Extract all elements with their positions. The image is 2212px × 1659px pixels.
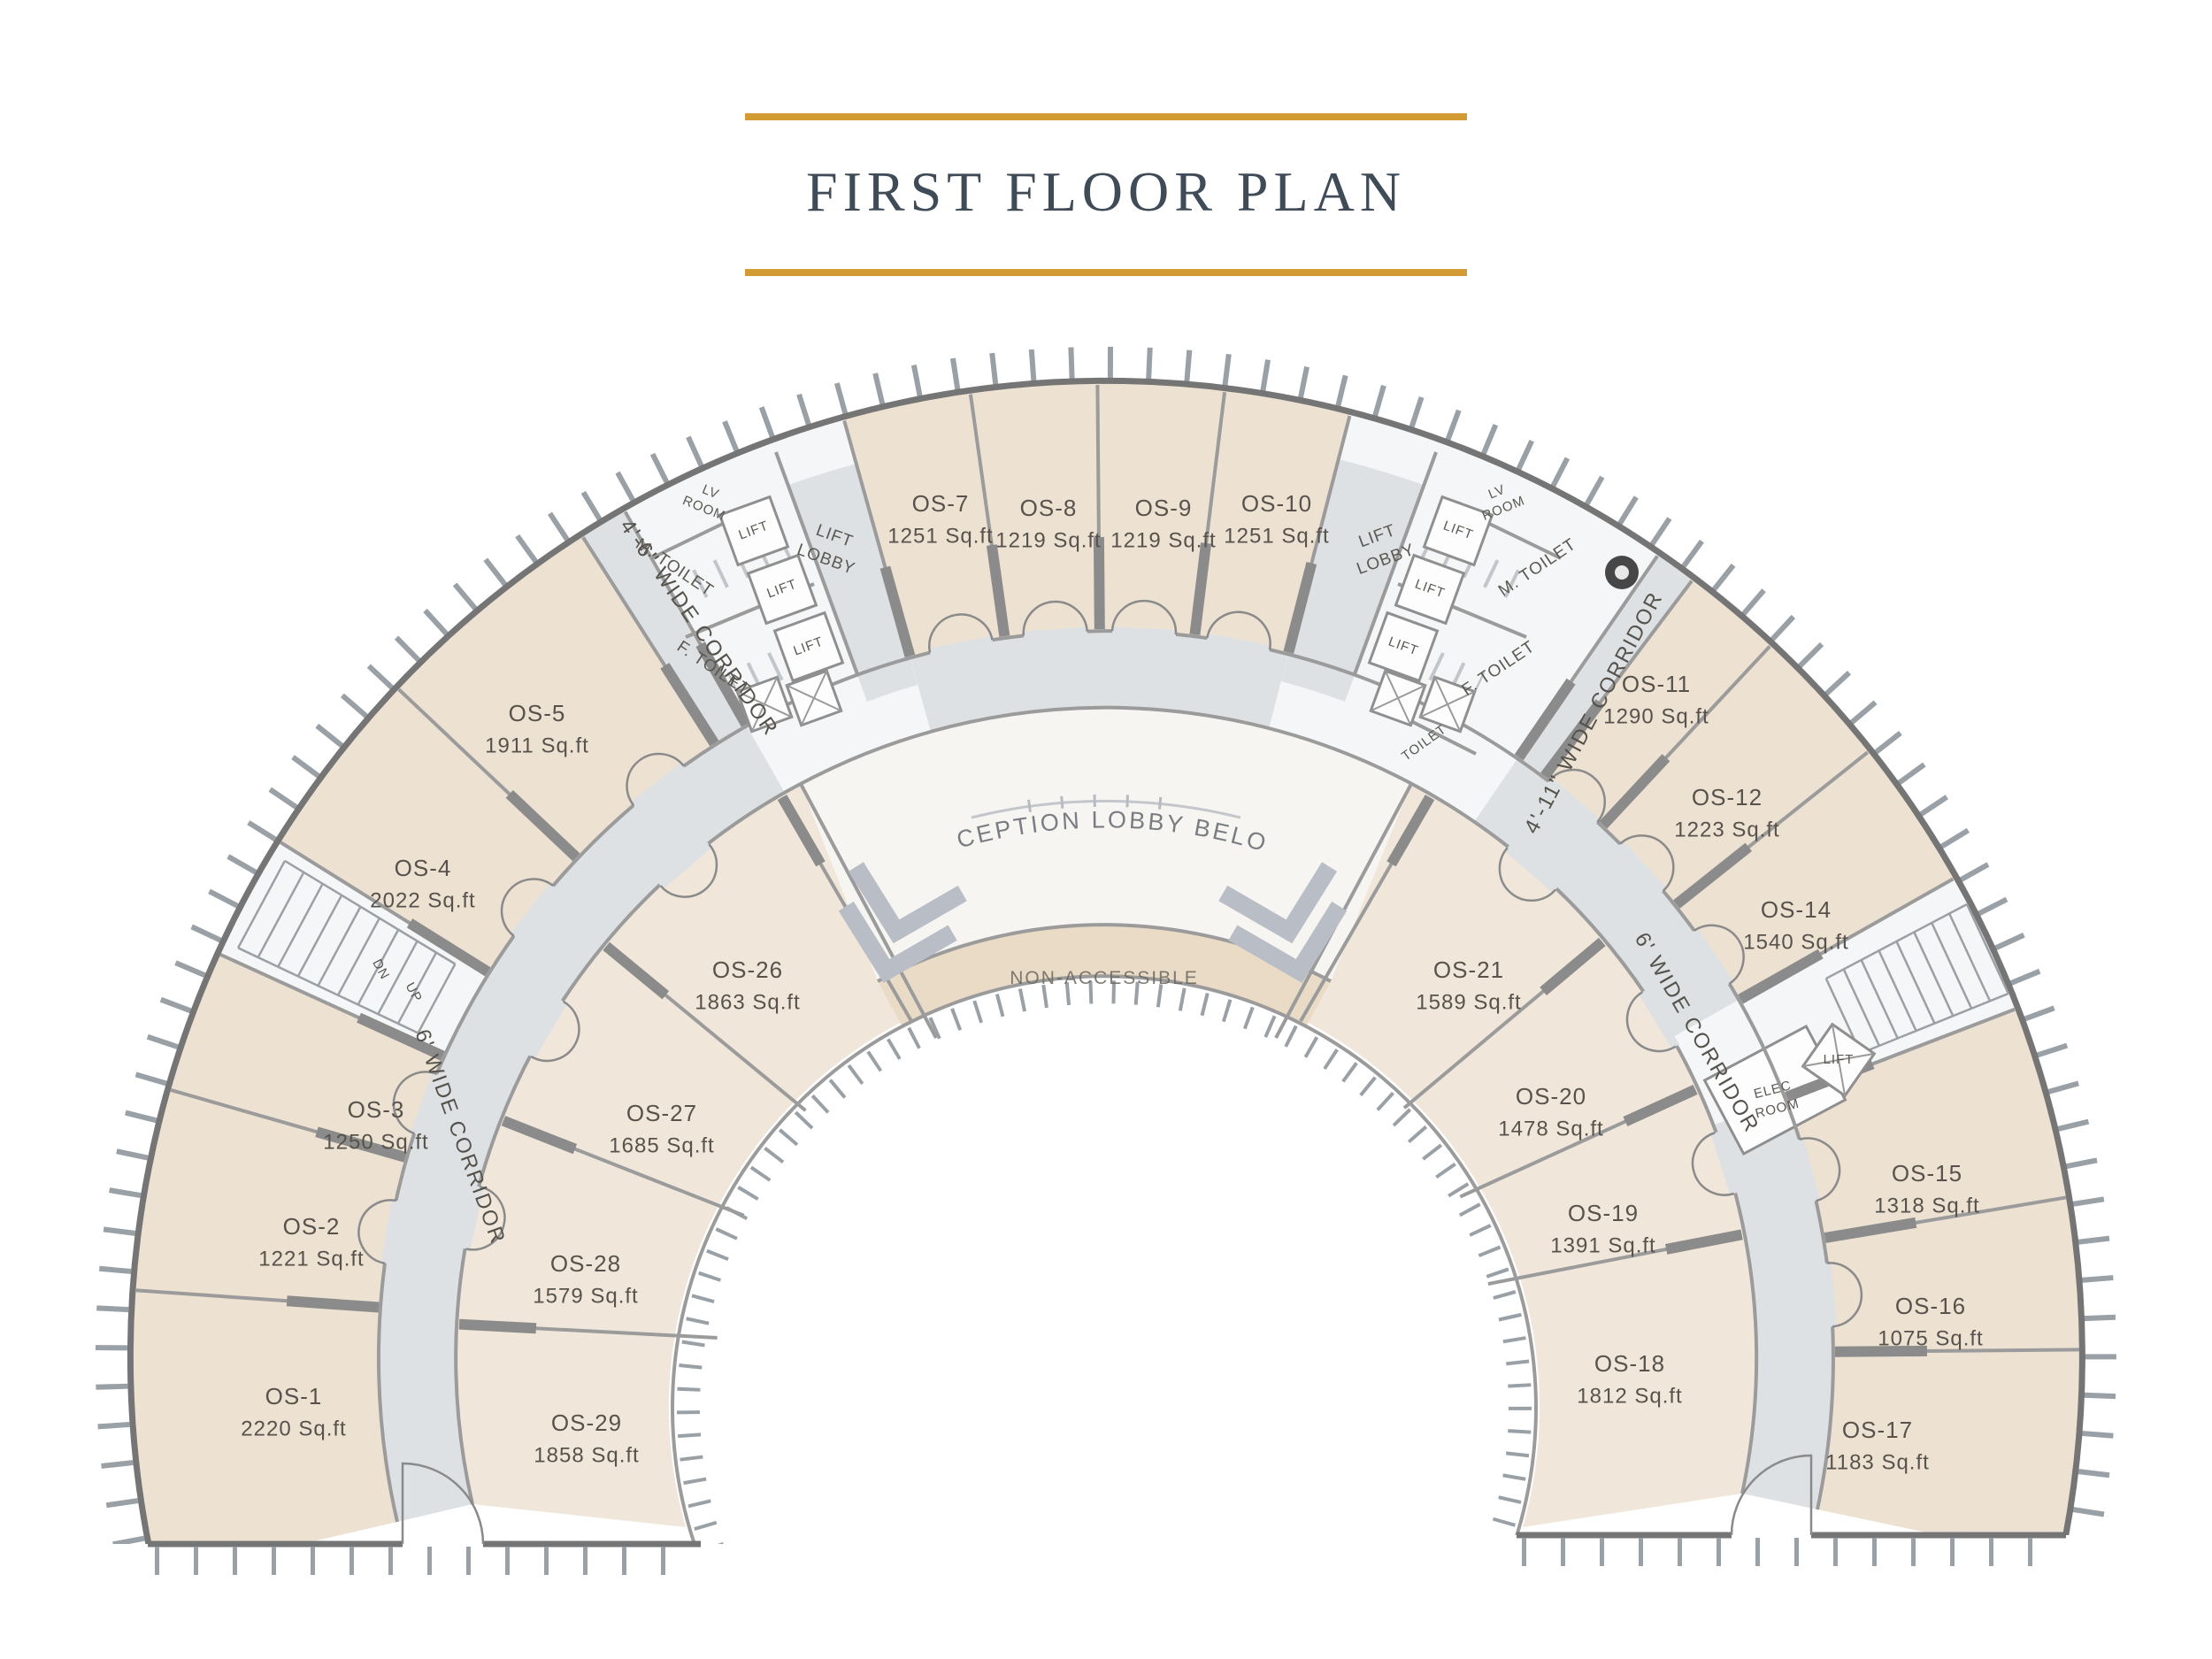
unit-area-OS-29: 1858 Sq.ft — [534, 1443, 639, 1467]
bottom-trim-left — [0, 1544, 796, 1659]
non-accessible-label: NON-ACCESSIBLE — [1010, 968, 1199, 988]
unit-area-OS-4: 2022 Sq.ft — [370, 888, 475, 912]
unit-id-OS-27: OS-27 — [626, 1100, 697, 1126]
divider-wall-jamb — [287, 1301, 379, 1307]
unit-id-OS-29: OS-29 — [551, 1409, 622, 1436]
bottom-trim-right — [1425, 1535, 2212, 1659]
unit-area-OS-12: 1223 Sq.ft — [1674, 818, 1779, 841]
unit-area-OS-10: 1251 Sq.ft — [1224, 524, 1329, 548]
stair-lift-label: LIFT — [1824, 1052, 1855, 1067]
floor-plan-canvas: FIRST FLOOR PLAN — [0, 0, 2212, 1659]
unit-id-OS-1: OS-1 — [265, 1383, 323, 1409]
unit-area-OS-28: 1579 Sq.ft — [533, 1284, 638, 1308]
unit-id-OS-2: OS-2 — [283, 1213, 341, 1240]
unit-area-OS-8: 1219 Sq.ft — [995, 528, 1101, 552]
unit-area-OS-18: 1812 Sq.ft — [1577, 1384, 1682, 1408]
unit-area-OS-9: 1219 Sq.ft — [1110, 528, 1216, 552]
unit-area-OS-27: 1685 Sq.ft — [609, 1133, 714, 1157]
unit-area-OS-19: 1391 Sq.ft — [1550, 1233, 1655, 1257]
unit-id-OS-28: OS-28 — [550, 1250, 621, 1277]
column-icon-center — [1615, 565, 1629, 580]
unit-id-OS-15: OS-15 — [1892, 1160, 1962, 1187]
unit-id-OS-10: OS-10 — [1241, 490, 1312, 517]
unit-id-OS-8: OS-8 — [1020, 495, 1078, 521]
unit-id-OS-11: OS-11 — [1622, 671, 1691, 697]
divider-wall-jamb — [1835, 1351, 1927, 1352]
unit-area-OS-1: 2220 Sq.ft — [241, 1417, 346, 1440]
unit-id-OS-7: OS-7 — [912, 490, 970, 517]
unit-area-OS-3: 1250 Sq.ft — [323, 1130, 428, 1154]
unit-id-OS-20: OS-20 — [1516, 1083, 1586, 1110]
unit-id-OS-18: OS-18 — [1594, 1350, 1665, 1377]
unit-area-OS-21: 1589 Sq.ft — [1416, 990, 1521, 1014]
unit-id-OS-5: OS-5 — [509, 700, 566, 726]
unit-id-OS-3: OS-3 — [348, 1096, 405, 1123]
unit-id-OS-19: OS-19 — [1568, 1200, 1639, 1226]
unit-area-OS-14: 1540 Sq.ft — [1743, 930, 1848, 954]
unit-area-OS-15: 1318 Sq.ft — [1874, 1194, 1979, 1217]
unit-id-OS-12: OS-12 — [1692, 784, 1763, 810]
divider-wall-jamb — [459, 1325, 536, 1329]
unit-area-OS-2: 1221 Sq.ft — [258, 1247, 364, 1271]
unit-id-OS-14: OS-14 — [1761, 896, 1832, 923]
unit-area-OS-7: 1251 Sq.ft — [887, 524, 993, 548]
unit-id-OS-26: OS-26 — [712, 956, 783, 983]
unit-area-OS-20: 1478 Sq.ft — [1498, 1117, 1603, 1141]
unit-id-OS-9: OS-9 — [1135, 495, 1193, 521]
unit-id-OS-21: OS-21 — [1433, 956, 1504, 983]
unit-area-OS-5: 1911 Sq.ft — [485, 733, 589, 757]
floor-plan: RECEPTION LOBBY BELOW NON-ACCESSIBLE 4'-… — [0, 0, 2212, 1659]
unit-id-OS-4: OS-4 — [395, 855, 452, 881]
unit-area-OS-17: 1183 Sq.ft — [1825, 1450, 1930, 1474]
unit-id-OS-16: OS-16 — [1895, 1293, 1966, 1319]
unit-area-OS-16: 1075 Sq.ft — [1878, 1326, 1983, 1350]
unit-id-OS-17: OS-17 — [1842, 1417, 1913, 1443]
unit-area-OS-26: 1863 Sq.ft — [695, 990, 800, 1014]
unit-area-OS-11: 1290 Sq.ft — [1603, 704, 1709, 728]
